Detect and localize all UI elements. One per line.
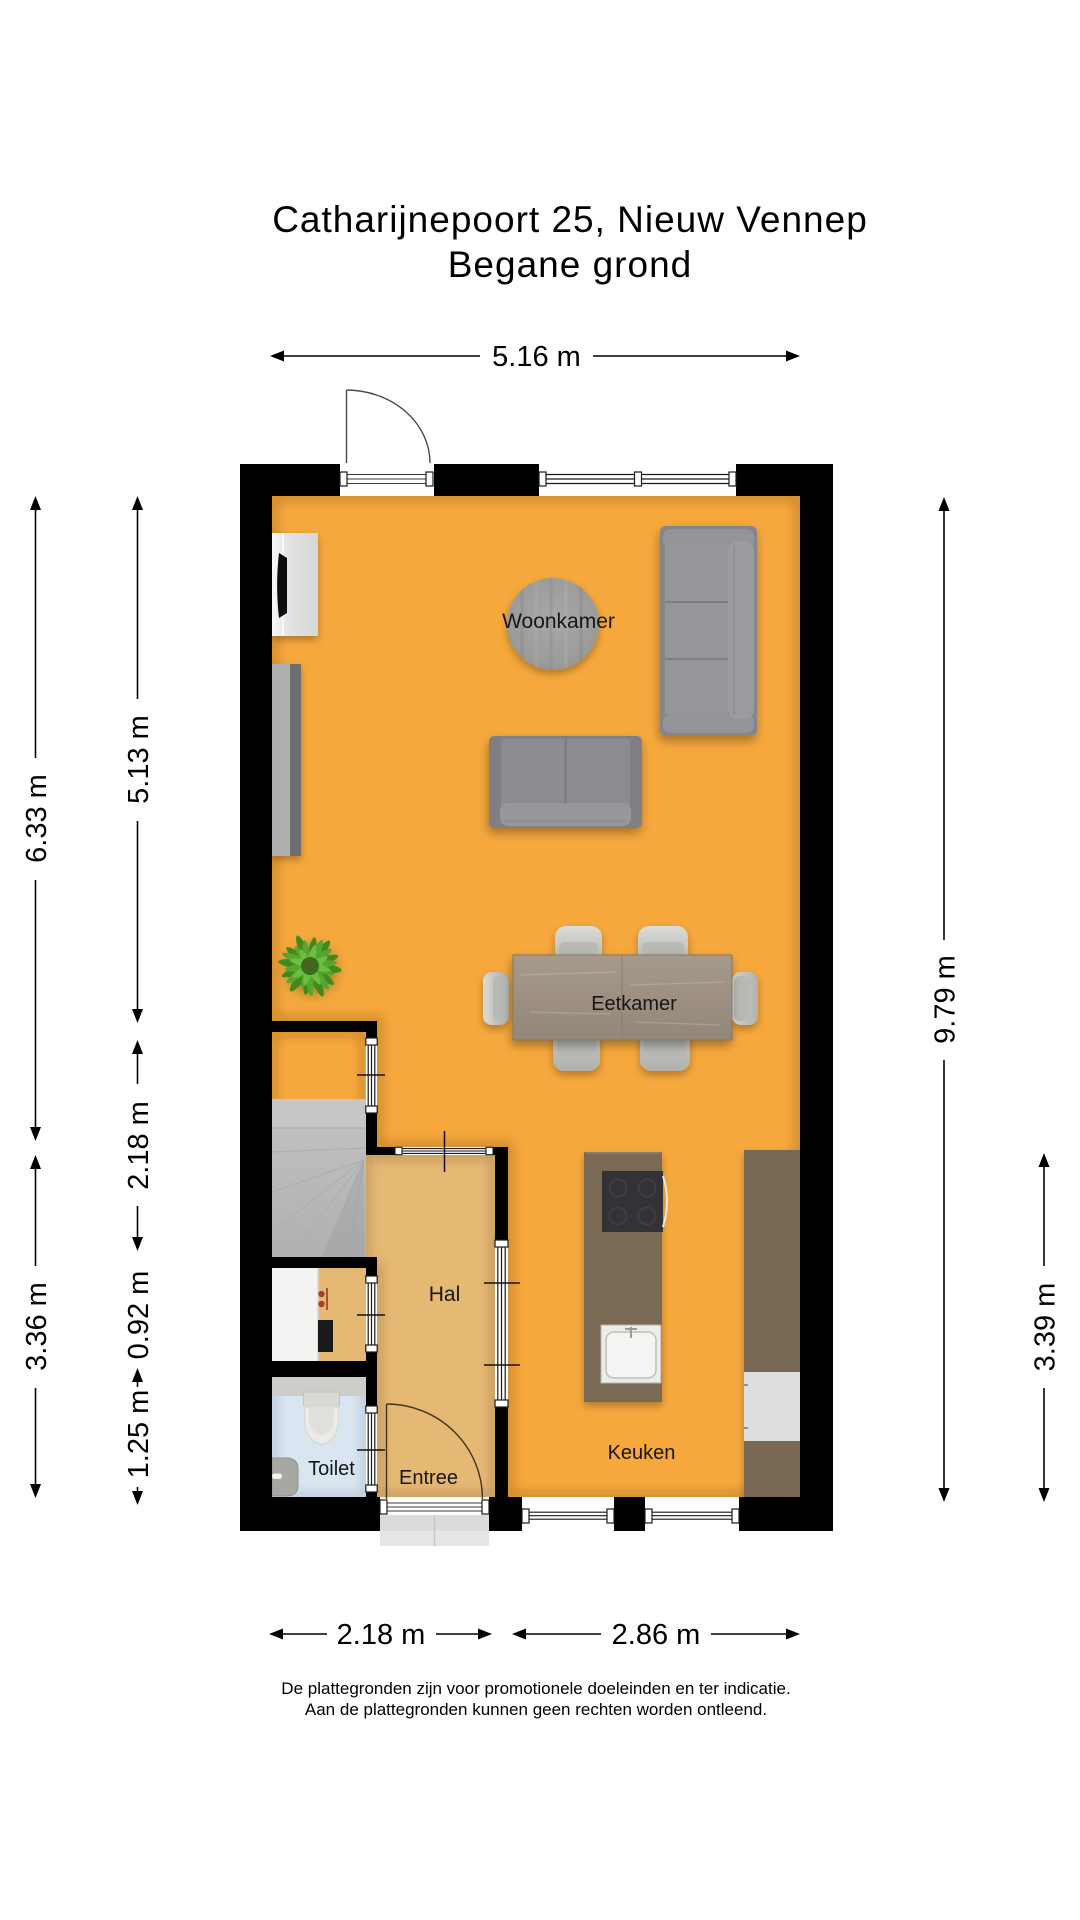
svg-text:3.39 m: 3.39 m (1030, 1283, 1062, 1372)
svg-text:5.13 m: 5.13 m (123, 715, 155, 804)
svg-text:Hal: Hal (429, 1283, 461, 1306)
svg-text:Woonkamer: Woonkamer (502, 610, 615, 633)
svg-text:1.25 m: 1.25 m (123, 1390, 155, 1479)
svg-text:9.79 m: 9.79 m (930, 955, 962, 1044)
svg-text:2.18 m: 2.18 m (337, 1619, 426, 1651)
svg-text:Toilet: Toilet (308, 1458, 355, 1480)
svg-text:Entree: Entree (399, 1467, 458, 1489)
svg-text:3.36 m: 3.36 m (21, 1282, 53, 1371)
svg-text:2.18 m: 2.18 m (123, 1101, 155, 1190)
svg-text:0.92 m: 0.92 m (123, 1271, 155, 1360)
svg-text:Begane grond: Begane grond (448, 244, 692, 285)
svg-text:2.86 m: 2.86 m (612, 1619, 701, 1651)
svg-text:5.16 m: 5.16 m (492, 341, 581, 373)
svg-text:Eetkamer: Eetkamer (591, 993, 677, 1015)
svg-text:Catharijnepoort 25, Nieuw Venn: Catharijnepoort 25, Nieuw Vennep (272, 199, 868, 240)
svg-text:6.33 m: 6.33 m (21, 774, 53, 863)
svg-text:Keuken: Keuken (608, 1442, 676, 1464)
svg-text:De plattegronden zijn voor pro: De plattegronden zijn voor promotionele … (281, 1679, 790, 1698)
svg-text:Aan de plattegronden kunnen ge: Aan de plattegronden kunnen geen rechten… (305, 1700, 767, 1719)
